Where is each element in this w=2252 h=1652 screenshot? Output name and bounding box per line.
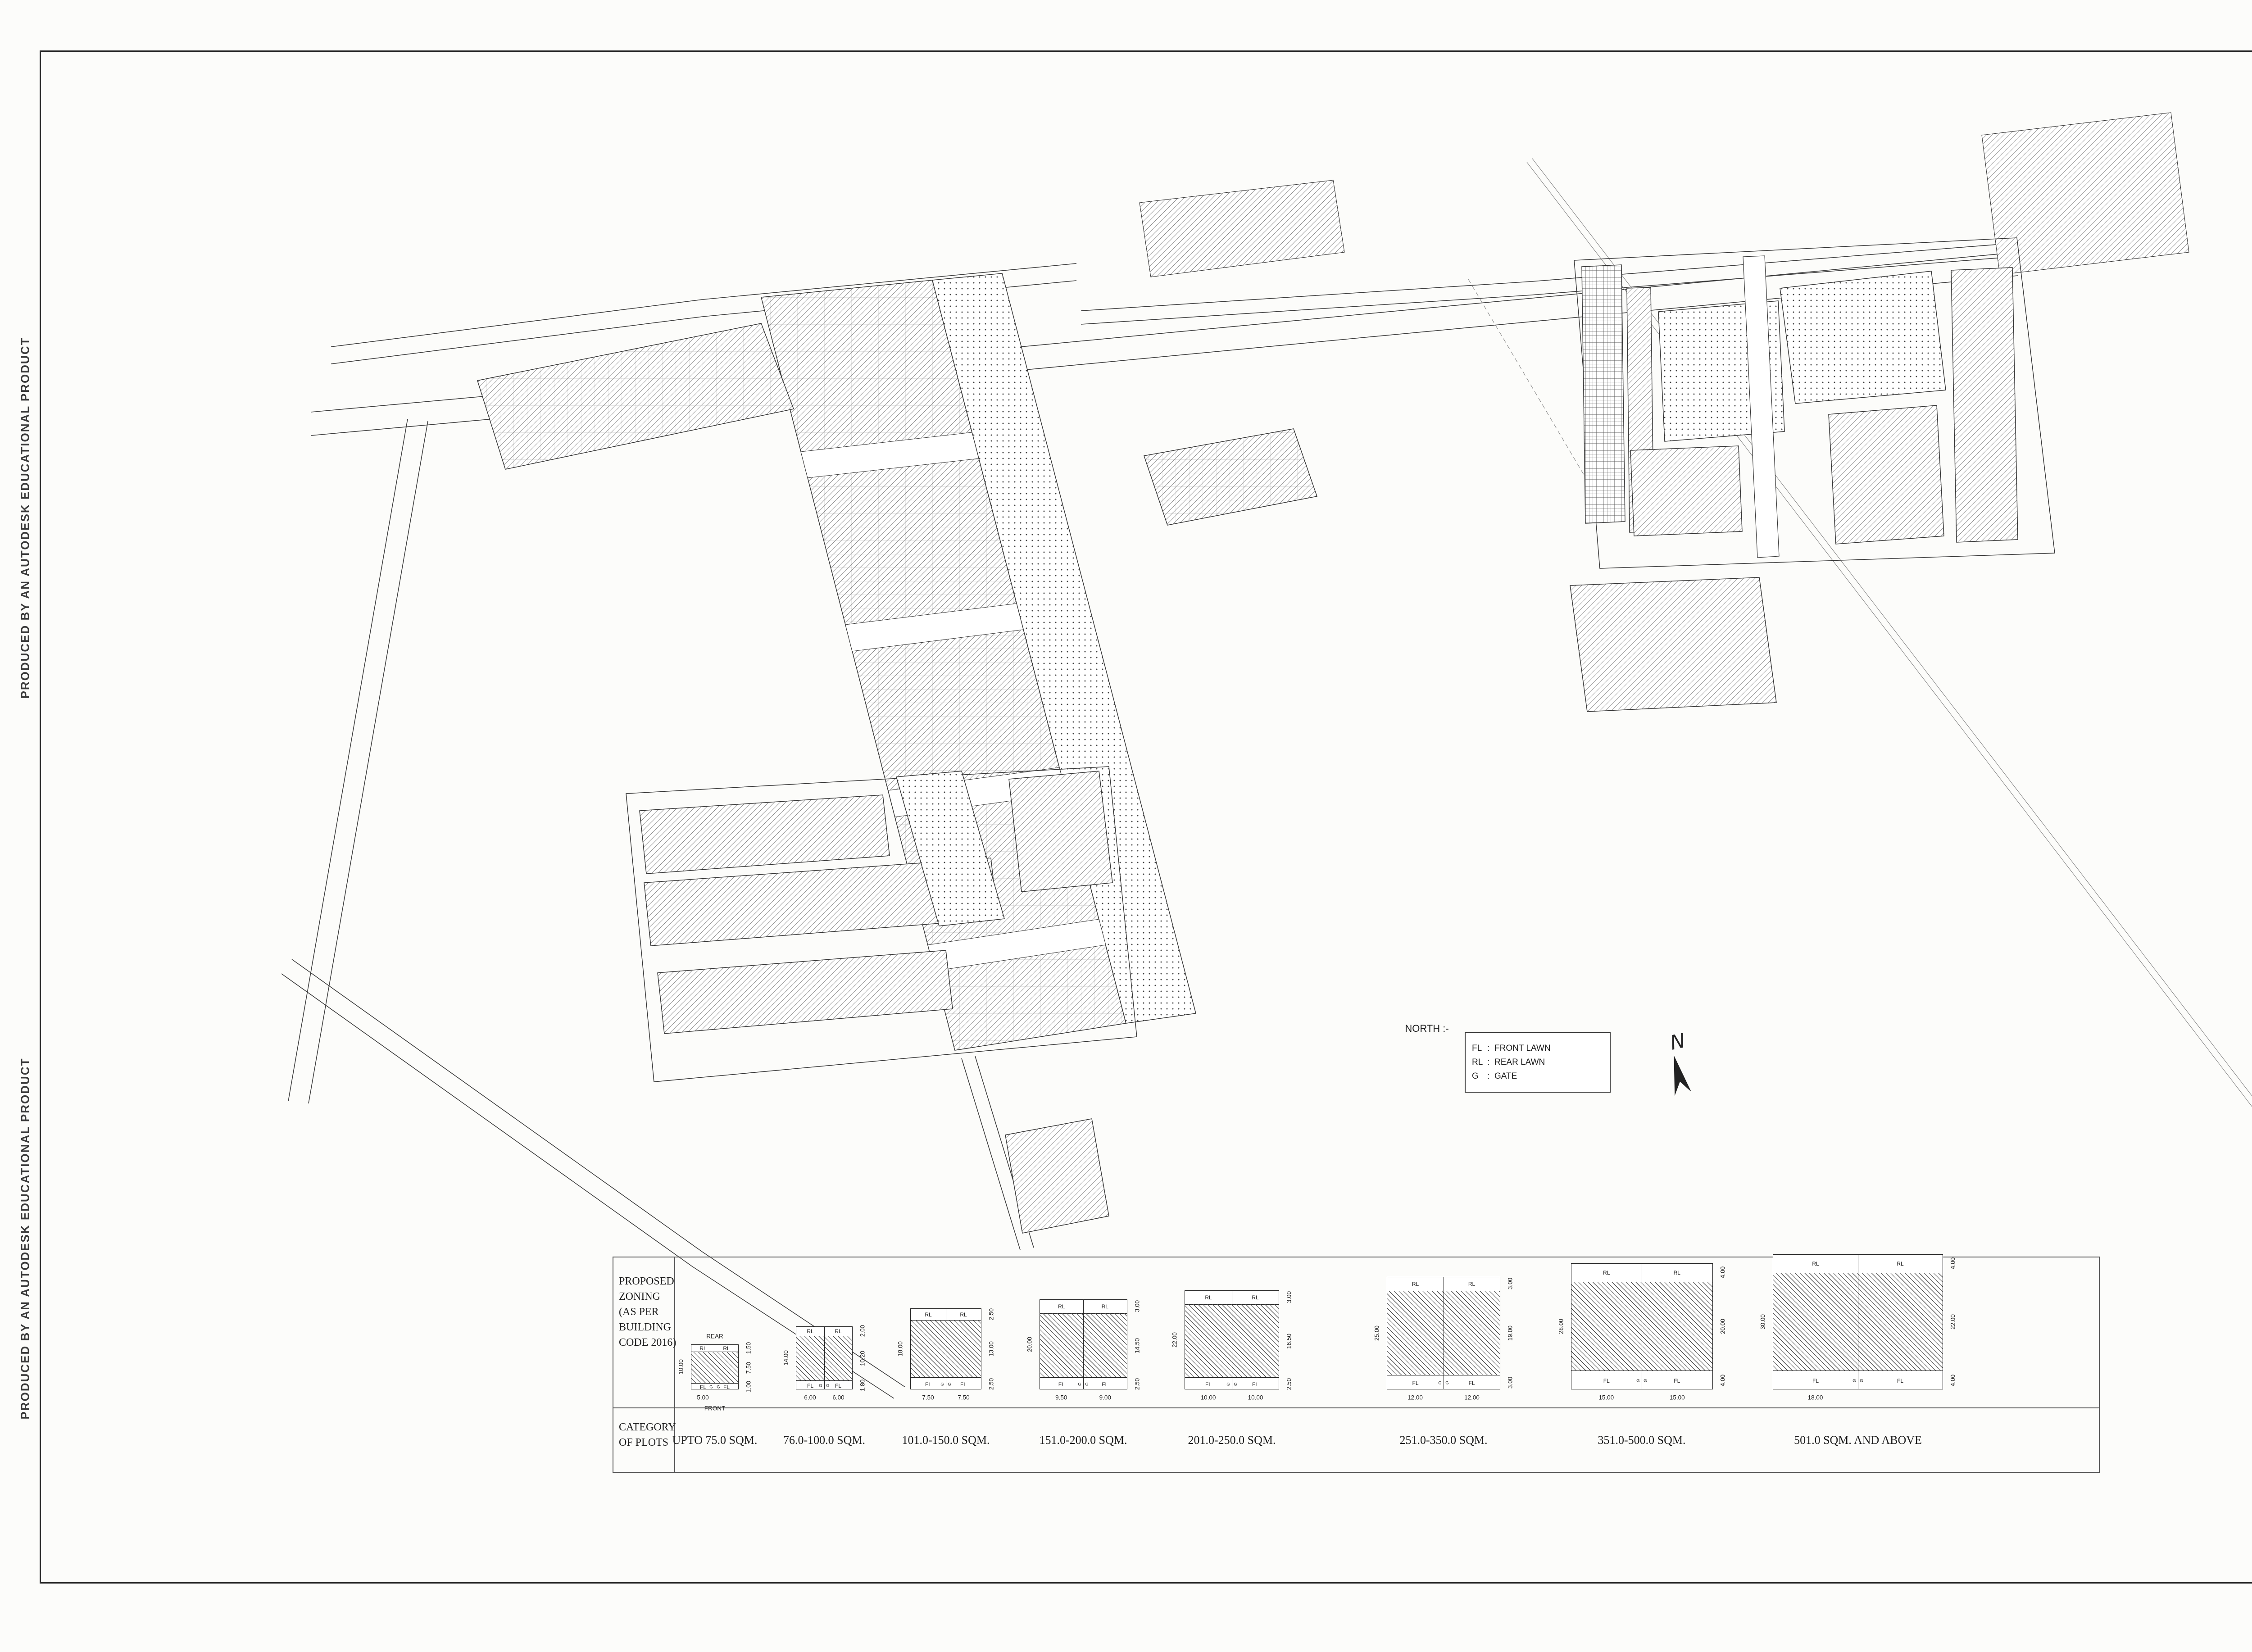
plot-diagram: RLRLFLFLGG [796, 1326, 853, 1389]
legend-label: REAR LAWN [1494, 1057, 1603, 1067]
plot-dim-width2: 10.00 [1248, 1394, 1263, 1401]
plot-category-name: 351.0-500.0 SQM. [1598, 1434, 1685, 1447]
plot-dim-rear: 3.00 [1286, 1291, 1293, 1303]
plot-dim-rear: 3.00 [1507, 1278, 1514, 1289]
legend-abbr: FL [1472, 1044, 1487, 1053]
plot-dim-total: 10.00 [678, 1359, 685, 1375]
plot-dim-width1: 12.00 [1407, 1394, 1423, 1401]
plot-diagram: RLRLFLFLGG [691, 1344, 739, 1389]
site-plan-svg [0, 0, 2252, 1652]
north-arrow-icon: N [1657, 1031, 1698, 1101]
plot-dim-front: 3.00 [1507, 1377, 1514, 1389]
plot-dim-width1: 7.50 [922, 1394, 934, 1401]
plot-dim-width2: 9.00 [1099, 1394, 1111, 1401]
plot-dim-rear: 2.00 [859, 1325, 866, 1337]
plot-diagram: RLRLFLFLGG [1387, 1277, 1500, 1389]
legend-label: FRONT LAWN [1494, 1044, 1603, 1053]
plot-category-name: UPTO 75.0 SQM. [672, 1434, 758, 1447]
plot-dim-width1: 15.00 [1598, 1394, 1614, 1401]
plot-dim-front: 2.50 [1134, 1378, 1140, 1389]
proposed-zoning-label: PROPOSED ZONING (AS PER BUILDING CODE 20… [619, 1274, 676, 1350]
plot-diagram: RLRLFLFLGG [1571, 1263, 1713, 1389]
legend-sep: : [1487, 1057, 1494, 1067]
plot-dim-total: 28.00 [1557, 1319, 1564, 1334]
plot-dim-buildable: 16.50 [1286, 1334, 1293, 1349]
plot-dim-total: 30.00 [1760, 1314, 1766, 1330]
plot-category-name: 251.0-350.0 SQM. [1399, 1434, 1487, 1447]
strip-divider-horizontal [613, 1407, 2099, 1408]
plot-dim-rear: 3.00 [1134, 1300, 1140, 1312]
legend-row: FL : FRONT LAWN [1472, 1044, 1603, 1053]
plot-diagram: RLRLFLFLGG [910, 1308, 981, 1389]
strip-border-bottom [613, 1472, 2099, 1473]
plot-dim-width1: 6.00 [804, 1394, 816, 1401]
plot-dim-rear: 4.00 [1719, 1266, 1726, 1278]
plot-diagram: RLRLFLFLGG [1773, 1254, 1943, 1389]
plot-dim-width2: 6.00 [832, 1394, 844, 1401]
plot-dim-front: 2.50 [988, 1378, 995, 1389]
plot-dim-buildable: 19.00 [1507, 1325, 1514, 1341]
plot-dim-width1: 9.50 [1055, 1394, 1067, 1401]
plot-diagram: RLRLFLFLGG [1040, 1299, 1127, 1389]
plot-dim-front: 2.50 [1286, 1378, 1293, 1389]
plot-dim-width2: 15.00 [1670, 1394, 1685, 1401]
strip-border-left [613, 1257, 613, 1473]
legend-abbr: G [1472, 1071, 1487, 1081]
plot-category-name: 76.0-100.0 SQM. [783, 1434, 865, 1447]
plot-dim-front: 4.00 [1719, 1375, 1726, 1386]
legend-row: RL : REAR LAWN [1472, 1057, 1603, 1067]
plot-dim-buildable: 22.00 [1950, 1314, 1957, 1330]
plot-dim-width1: 18.00 [1808, 1394, 1823, 1401]
plot-clusters [477, 113, 2189, 1233]
plot-diagram: RLRLFLFLGG [1185, 1290, 1279, 1389]
plot-dim-rear: 1.50 [745, 1342, 752, 1353]
legend-label: GATE [1494, 1071, 1603, 1081]
plot-dim-front: 1.80 [859, 1380, 866, 1391]
plot-front-word: FRONT [704, 1405, 726, 1412]
legend-sep: : [1487, 1071, 1494, 1081]
strip-border-right [2099, 1257, 2100, 1473]
svg-text:N: N [1668, 1031, 1688, 1055]
plot-dim-width1: 10.00 [1201, 1394, 1216, 1401]
category-of-plots-label: CATEGORY OF PLOTS [619, 1420, 676, 1450]
plot-rear-word: REAR [706, 1333, 723, 1340]
plot-dim-width2: 7.50 [958, 1394, 969, 1401]
legend-row: G : GATE [1472, 1071, 1603, 1081]
north-label: NORTH :- [1405, 1023, 1448, 1035]
plot-dim-width2: 12.00 [1464, 1394, 1480, 1401]
plot-dim-buildable: 7.50 [745, 1362, 752, 1373]
plot-category-name: 151.0-200.0 SQM. [1039, 1434, 1127, 1447]
plot-dim-rear: 4.00 [1950, 1257, 1957, 1269]
plot-dim-total: 20.00 [1026, 1337, 1033, 1352]
legend-sep: : [1487, 1044, 1494, 1053]
plot-dim-total: 14.00 [783, 1350, 790, 1366]
plot-dim-total: 22.00 [1171, 1332, 1178, 1348]
plot-dim-rear: 2.50 [988, 1308, 995, 1320]
plot-category-name: 201.0-250.0 SQM. [1188, 1434, 1276, 1447]
plot-dim-buildable: 20.00 [1719, 1319, 1726, 1334]
plot-category-name: 501.0 SQM. AND ABOVE [1794, 1434, 1922, 1447]
plot-dim-front: 4.00 [1950, 1375, 1957, 1386]
plot-dim-buildable: 10.20 [859, 1351, 866, 1366]
plot-dim-buildable: 13.00 [988, 1341, 995, 1357]
zoning-plan-sheet: PRODUCED BY AN AUTODESK EDUCATIONAL PROD… [0, 0, 2252, 1652]
plot-dim-buildable: 14.50 [1134, 1338, 1140, 1353]
plot-dim-front: 1.00 [745, 1381, 752, 1393]
plot-category-name: 101.0-150.0 SQM. [902, 1434, 990, 1447]
lawn-gate-legend: FL : FRONT LAWN RL : REAR LAWN G : GATE [1465, 1032, 1611, 1093]
plot-dim-total: 18.00 [897, 1341, 904, 1357]
plot-dim-width1: 5.00 [697, 1394, 708, 1401]
plot-dim-total: 25.00 [1374, 1325, 1380, 1341]
legend-abbr: RL [1472, 1057, 1487, 1067]
